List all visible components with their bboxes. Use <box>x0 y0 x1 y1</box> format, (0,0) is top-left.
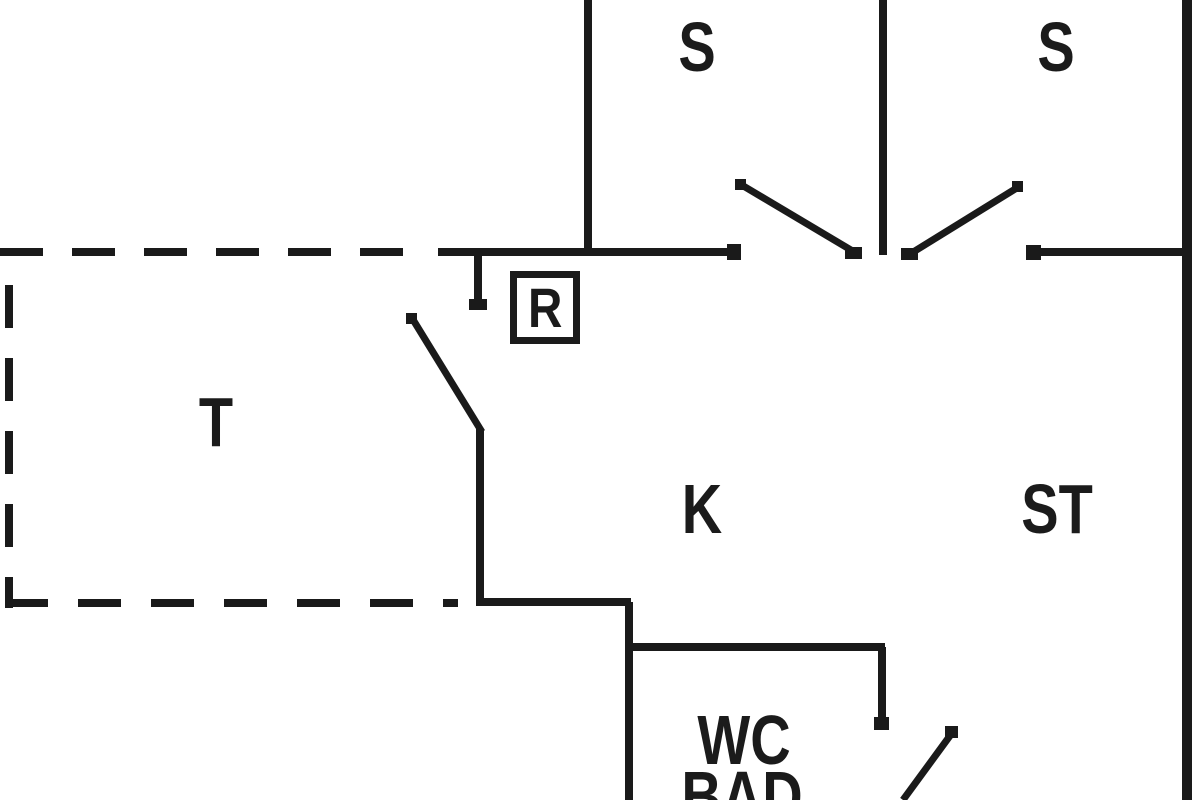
door-leaf-wc <box>903 733 952 800</box>
room-label-st: ST <box>1021 476 1093 543</box>
cap-wc-leaf-top <box>945 726 958 738</box>
cap-double-left-leaf <box>845 247 862 259</box>
room-label-k: K <box>682 476 722 543</box>
room-label-s-2: S <box>1037 14 1074 81</box>
floor-plan-drawing <box>0 0 1200 800</box>
door-leaf-double-right <box>910 186 1020 254</box>
door-leaf-hall <box>412 318 482 432</box>
room-label-s-1: S <box>678 14 715 81</box>
cap-wc-wall-end <box>874 717 889 730</box>
room-label-t: T <box>199 389 233 456</box>
r-marker-label: R <box>528 280 562 336</box>
cap-double-left-leaf-top <box>735 179 746 190</box>
door-leaf-double-left <box>740 184 856 253</box>
floor-plan: S S T K ST WC BAD R <box>0 0 1200 800</box>
cap-hall-wall-left-end <box>727 244 741 260</box>
cap-hall-leaf-top <box>406 313 417 324</box>
cap-double-right-leaf-top <box>1012 181 1023 192</box>
cap-door-jamb <box>469 299 487 310</box>
room-label-bad: BAD <box>681 763 802 800</box>
cap-hall-wall-right-end <box>1026 245 1041 260</box>
r-marker-box: R <box>510 271 580 344</box>
cap-double-right-leaf <box>901 248 918 260</box>
